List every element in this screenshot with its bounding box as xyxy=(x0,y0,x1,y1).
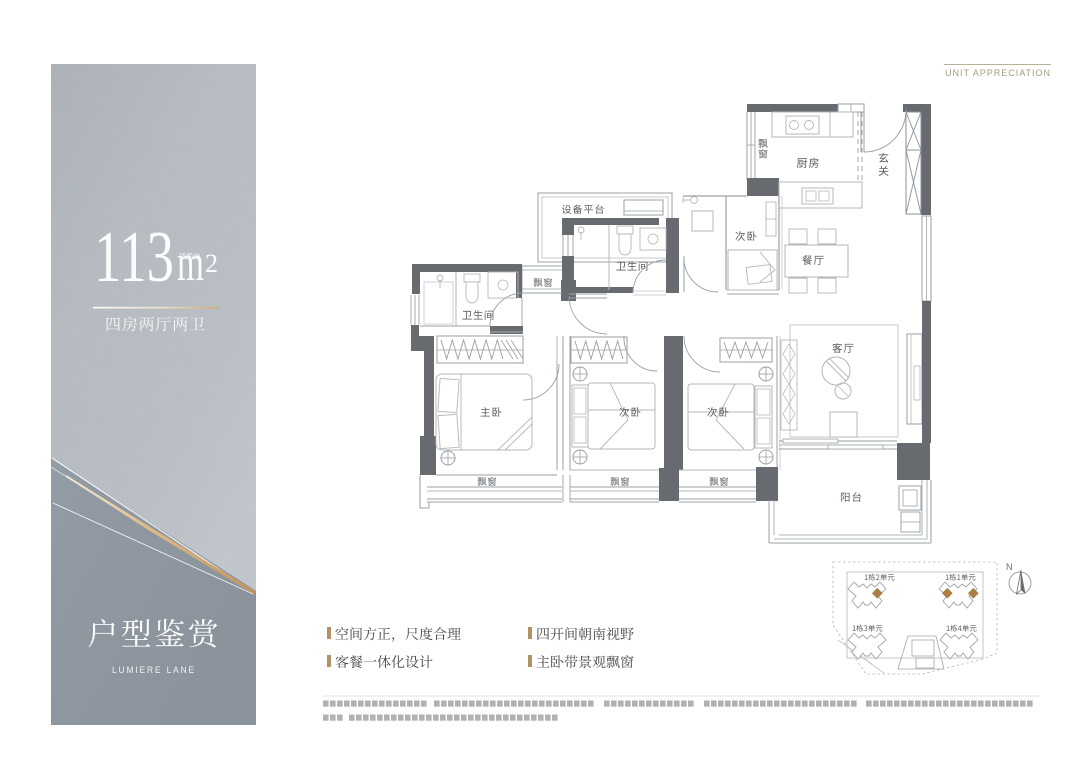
svg-text:2: 2 xyxy=(205,249,218,278)
svg-text:N: N xyxy=(1006,562,1013,572)
svg-text:LUMIERE LANE: LUMIERE LANE xyxy=(112,665,196,675)
svg-text:113: 113 xyxy=(94,216,174,297)
svg-text:m: m xyxy=(177,235,204,292)
svg-text:UNIT APPRECIATION: UNIT APPRECIATION xyxy=(945,68,1051,79)
